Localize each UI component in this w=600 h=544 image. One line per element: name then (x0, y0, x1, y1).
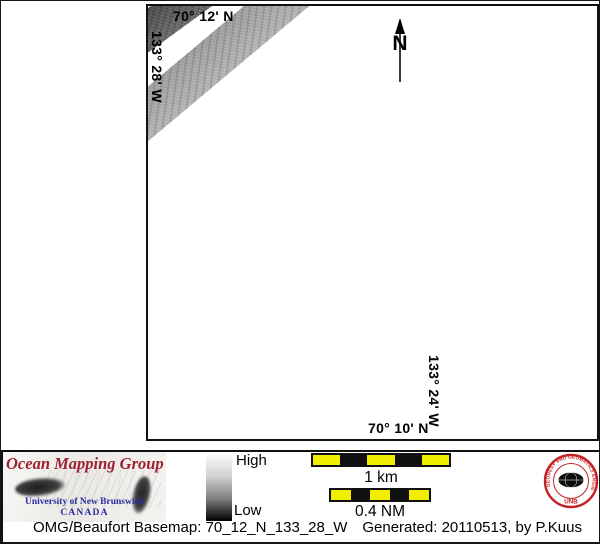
latitude-label-bottom: 70° 10' N (368, 420, 429, 436)
north-arrow-label: N (388, 33, 412, 54)
scalebar-segment (370, 490, 390, 500)
generated-label: Generated: 20110513, by P.Kuus (362, 519, 582, 536)
omg-title: Ocean Mapping Group (6, 454, 166, 474)
seal-acronym: UNB (564, 499, 578, 506)
colorbar-gradient (206, 453, 232, 521)
basemap-label: OMG/Beaufort Basemap: 70_12_N_133_28_W (33, 519, 347, 536)
footer-caption: OMG/Beaufort Basemap: 70_12_N_133_28_WGe… (33, 519, 582, 536)
scalebar-nm (329, 488, 431, 502)
scalebar-segment (331, 490, 351, 500)
scalebar-km-label: 1 km (311, 469, 451, 487)
scalebar-segment (422, 455, 449, 465)
omg-logo: Ocean Mapping Group University of New Br… (3, 452, 166, 522)
scalebar-segment (395, 455, 422, 465)
scalebar-segment (340, 455, 367, 465)
scalebar-segment (390, 490, 410, 500)
scalebar-segment (367, 455, 394, 465)
colorbar-low-label: Low (234, 502, 262, 519)
legend-panel: Ocean Mapping Group University of New Br… (1, 450, 600, 544)
omg-country: CANADA (3, 508, 166, 518)
map-area: 70° 12' N 133° 28' W 133° 24' W 70° 10' … (146, 4, 599, 441)
omg-institution: University of New Brunswick (3, 497, 166, 507)
longitude-label-left: 133° 28' W (149, 31, 165, 103)
longitude-label-right: 133° 24' W (426, 355, 442, 427)
scalebar-km (311, 453, 451, 467)
north-arrow-icon: N (388, 18, 412, 82)
scalebar-segment (351, 490, 371, 500)
latitude-label-top: 70° 12' N (173, 8, 234, 24)
basemap-image: 70° 12' N 133° 28' W 133° 24' W 70° 10' … (0, 0, 600, 544)
scalebar-segment (409, 490, 429, 500)
scalebar-segment (313, 455, 340, 465)
unb-seal: GEODESY AND GEOMATICS ENGINEERING UNB (543, 453, 599, 509)
colorbar-high-label: High (236, 452, 267, 469)
